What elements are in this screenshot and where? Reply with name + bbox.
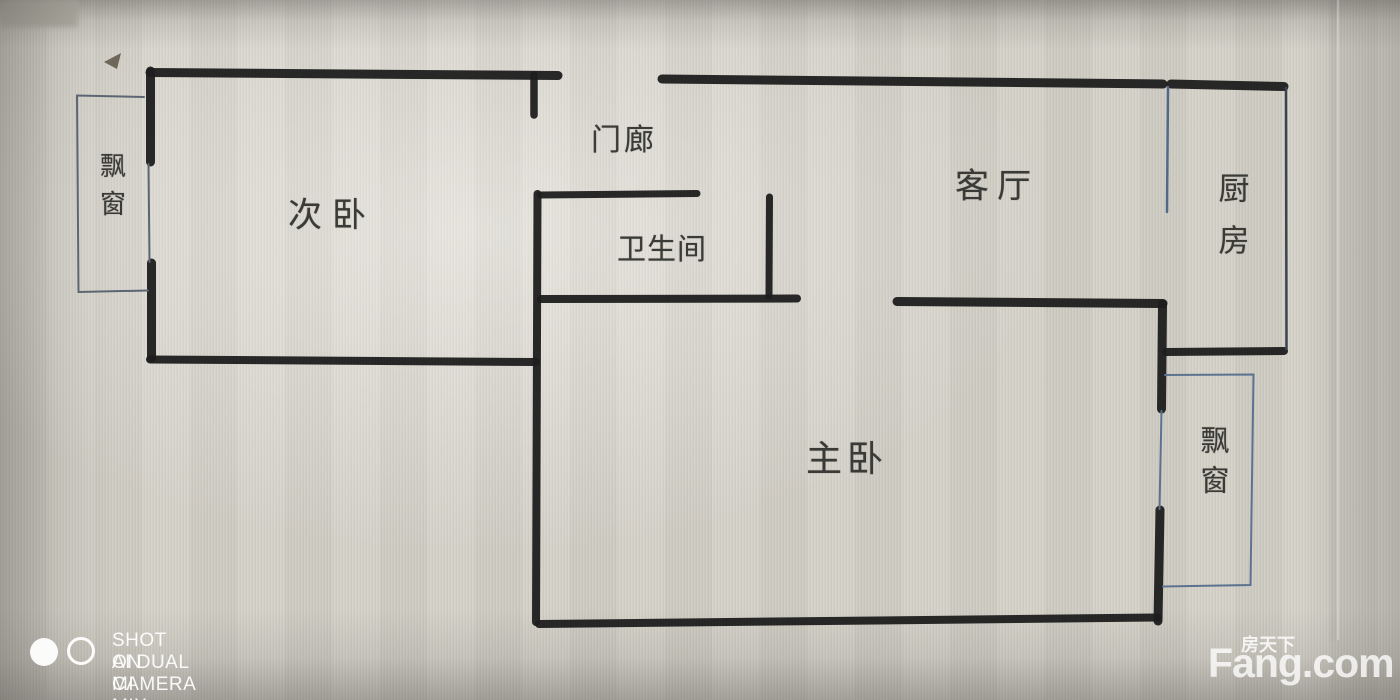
wall-kitchen-top — [1171, 84, 1284, 87]
room-label-master-bedroom: 主卧 — [806, 430, 888, 482]
kitchen-window-line — [1167, 87, 1168, 212]
camera-watermark-line2: AI DUAL CAMERA — [112, 652, 196, 696]
bay-window-left-glass-line — [149, 164, 150, 262]
room-label-bay-window-left: 飘窗 — [93, 152, 130, 228]
room-label-kitchen: 厨房 — [1209, 172, 1254, 276]
camera-watermark-ring-icon — [67, 637, 95, 665]
wall-bathroom-right — [769, 197, 770, 296]
wall-livingroom-top — [662, 79, 1163, 84]
wall-kitchen-bottom — [1166, 351, 1284, 352]
room-label-bay-window-right: 飘窗 — [1192, 425, 1234, 505]
wall-bathroom-top — [540, 194, 697, 196]
wall-master-right-lower — [1158, 510, 1160, 621]
mouse-cursor — [104, 53, 121, 69]
floorplan-photo: 次卧 门廊 卫生间 客厅 厨房 主卧 飘窗 飘窗 SHOT ON MI MIX … — [0, 0, 1400, 700]
fang-watermark-logo: Fang.com — [1208, 640, 1394, 687]
wall-bedroom2-bottom — [150, 360, 536, 363]
room-label-living-room: 客厅 — [955, 159, 1039, 208]
room-label-secondary-bedroom: 次卧 — [288, 188, 376, 237]
bay-window-right-glass-line — [1160, 411, 1162, 509]
room-label-bathroom: 卫生间 — [617, 226, 707, 268]
wall-center-left — [536, 194, 538, 622]
wall-bedroom2-top — [150, 73, 558, 76]
wall-bathroom-bottom — [541, 299, 797, 300]
wall-master-right-upper — [1162, 304, 1163, 409]
room-label-porch: 门廊 — [591, 115, 657, 159]
wall-master-bottom — [539, 618, 1158, 625]
camera-watermark-dot-icon — [30, 638, 58, 666]
wall-kitchen-right-thin — [1286, 88, 1287, 349]
floorplan-drawing — [0, 0, 1400, 700]
wall-master-top — [897, 302, 1163, 304]
